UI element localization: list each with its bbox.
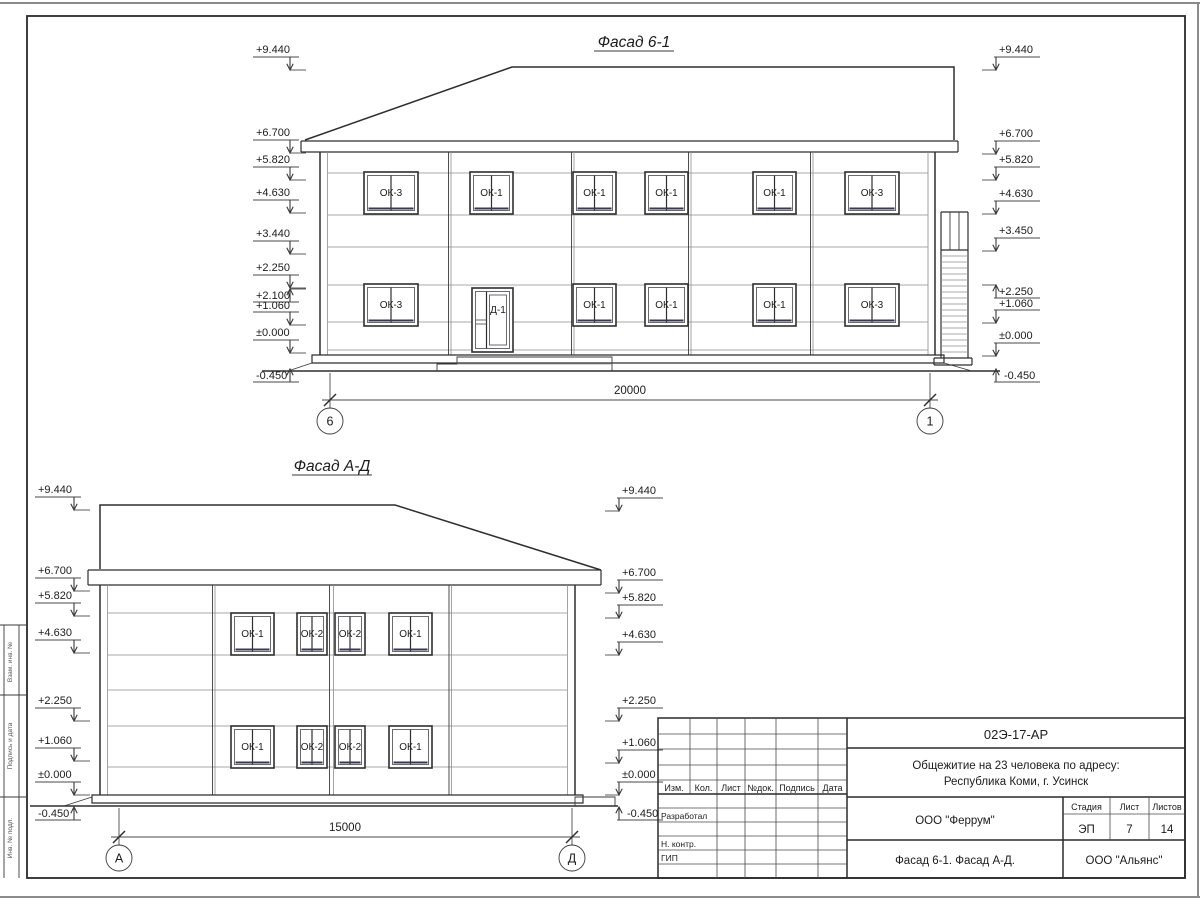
- window-label: ОК-1: [583, 188, 606, 199]
- contractor-name: ООО "Альянс": [1086, 855, 1163, 867]
- elevation-mark: +5.820: [999, 154, 1033, 166]
- facade1-roof: [301, 67, 958, 152]
- window-label: ОК-1: [655, 300, 678, 311]
- role-developed: Разработал: [661, 811, 707, 821]
- elevation-mark: -0.450: [627, 808, 658, 820]
- elevation-mark: +1.060: [38, 735, 72, 747]
- window-label: ОК-3: [861, 188, 884, 199]
- sheets-label: Листов: [1152, 802, 1181, 812]
- col-header-podpis: Подпись: [779, 783, 815, 793]
- window-label: ОК-1: [763, 188, 786, 199]
- facade2-roof: [88, 505, 601, 585]
- sheet-number: 7: [1126, 824, 1132, 836]
- elevation-mark: ±0.000: [622, 769, 656, 781]
- elevation-mark: -0.450: [1004, 370, 1035, 382]
- window-label: ОК-2: [339, 742, 362, 753]
- facade1-title: Фасад 6-1: [598, 34, 671, 51]
- left-margin-table: Взам. инв. № Подпись и дата Инв. № подл.: [0, 625, 27, 878]
- window-label: ОК-3: [380, 188, 403, 199]
- elevation-mark: +3.450: [999, 225, 1033, 237]
- window-label: ОК-3: [861, 300, 884, 311]
- door-label: Д-1: [490, 305, 506, 316]
- drawing-sheet: Взам. инв. № Подпись и дата Инв. № подл.…: [0, 0, 1200, 900]
- elevation-mark: +6.700: [256, 127, 290, 139]
- facade1-windows-lower: ОК-3 ОК-1 ОК-1 ОК-1 ОК-3: [364, 284, 899, 326]
- facade1-dimension: 20000 6 1: [317, 373, 943, 434]
- margin-label-podpis: Подпись и дата: [7, 722, 14, 769]
- facade1-windows-upper: ОК-3 ОК-1 ОК-1 ОК-1 ОК-1 ОК-3: [364, 172, 899, 214]
- margin-label-inv: Инв. № подл.: [7, 818, 14, 859]
- project-name-line2: Республика Коми, г. Усинск: [944, 776, 1089, 788]
- elevation-mark: +9.440: [38, 484, 72, 496]
- elevation-mark: +4.630: [38, 627, 72, 639]
- elevation-mark: +5.820: [622, 592, 656, 604]
- window-label: ОК-1: [763, 300, 786, 311]
- elevation-mark: +9.440: [622, 485, 656, 497]
- col-header-ndoc: №док.: [747, 783, 773, 793]
- axis-label: 6: [327, 415, 334, 429]
- sheet-title: Фасад 6-1. Фасад А-Д.: [895, 855, 1015, 867]
- window-label: ОК-2: [301, 629, 324, 640]
- dimension-text: 20000: [614, 385, 646, 397]
- elevation-mark: +5.820: [256, 154, 290, 166]
- entrance-door-d1: Д-1: [472, 288, 513, 352]
- window-label: ОК-3: [380, 300, 403, 311]
- elevation-mark: +6.700: [999, 128, 1033, 140]
- role-gip: ГИП: [661, 853, 678, 863]
- window-label: ОК-1: [480, 188, 503, 199]
- elevation-mark: ±0.000: [256, 327, 290, 339]
- facade-a-d: Фасад А-Д ОК-1: [30, 458, 663, 871]
- col-header-list: Лист: [721, 783, 741, 793]
- axis-label: Д: [568, 852, 577, 866]
- sheet-label: Лист: [1120, 802, 1140, 812]
- elevation-mark: +4.630: [256, 187, 290, 199]
- elevation-mark: +2.250: [256, 262, 290, 274]
- elevation-mark: +9.440: [999, 44, 1033, 56]
- window-label: ОК-1: [655, 188, 678, 199]
- col-header-data: Дата: [823, 783, 843, 793]
- facade2-windows-lower: ОК-1 ОК-2 ОК-2 ОК-1: [231, 726, 432, 768]
- stage-label: Стадия: [1071, 802, 1102, 812]
- elevation-mark: ±0.000: [38, 769, 72, 781]
- elevation-mark: +2.250: [999, 286, 1033, 298]
- col-header-izm: Изм.: [664, 783, 683, 793]
- elevation-mark: -0.450: [256, 370, 287, 382]
- facade1-marks-left: +9.440 +6.700 +5.820 +4.630 +3.440 +2.25…: [253, 44, 306, 382]
- title-block: Изм. Кол. Лист №док. Подпись Дата Разраб…: [658, 718, 1185, 878]
- window-label: ОК-1: [399, 629, 422, 640]
- stage-value: ЭП: [1078, 824, 1095, 836]
- elevation-mark: +2.250: [38, 695, 72, 707]
- elevation-mark: +6.700: [622, 567, 656, 579]
- facade2-marks-right: +9.440 +6.700 +5.820 +4.630 +2.250 +1.06…: [605, 485, 663, 820]
- window-label: ОК-1: [241, 742, 264, 753]
- col-header-kol: Кол.: [695, 783, 713, 793]
- facade2-title: Фасад А-Д: [294, 458, 371, 475]
- margin-label-vzam: Взам. инв. №: [7, 642, 14, 682]
- elevation-mark: +5.820: [38, 590, 72, 602]
- facade-6-1: Фасад 6-1: [253, 34, 1040, 434]
- project-name-line1: Общежитие на 23 человека по адресу:: [912, 760, 1119, 772]
- elevation-mark: +1.060: [256, 300, 290, 312]
- axis-label: А: [115, 852, 124, 866]
- window-label: ОК-2: [301, 742, 324, 753]
- elevation-mark: +1.060: [999, 298, 1033, 310]
- facade2-windows-upper: ОК-1 ОК-2 ОК-2 ОК-1: [231, 613, 432, 655]
- elevation-mark: +4.630: [622, 629, 656, 641]
- facade2-base: [30, 795, 618, 806]
- window-label: ОК-1: [583, 300, 606, 311]
- dimension-text: 15000: [329, 822, 361, 834]
- facade2-dimension: 15000 А Д: [106, 808, 585, 871]
- elevation-mark: +2.250: [622, 695, 656, 707]
- elevation-mark: +3.440: [256, 228, 290, 240]
- elevation-mark: -0.450: [38, 808, 69, 820]
- elevation-mark: +6.700: [38, 565, 72, 577]
- elevation-mark: +1.060: [622, 737, 656, 749]
- window-label: ОК-2: [339, 629, 362, 640]
- window-label: ОК-1: [241, 629, 264, 640]
- axis-label: 1: [927, 415, 934, 429]
- facade1-marks-right: +9.440 +6.700 +5.820 +4.630 +3.450 +2.25…: [982, 44, 1040, 382]
- facade2-marks-left: +9.440 +6.700 +5.820 +4.630 +2.250 +1.06…: [35, 484, 90, 820]
- org-name: ООО "Феррум": [915, 815, 995, 827]
- elevation-mark: ±0.000: [999, 330, 1033, 342]
- doc-code: 02Э-17-АР: [984, 727, 1048, 742]
- facade1-fire-ladder: [934, 212, 972, 365]
- sheets-total: 14: [1161, 824, 1174, 836]
- elevation-mark: +9.440: [256, 44, 290, 56]
- window-label: ОК-1: [399, 742, 422, 753]
- role-ncontrol: Н. контр.: [661, 839, 696, 849]
- elevation-mark: +4.630: [999, 188, 1033, 200]
- facade1-base: [262, 355, 1000, 371]
